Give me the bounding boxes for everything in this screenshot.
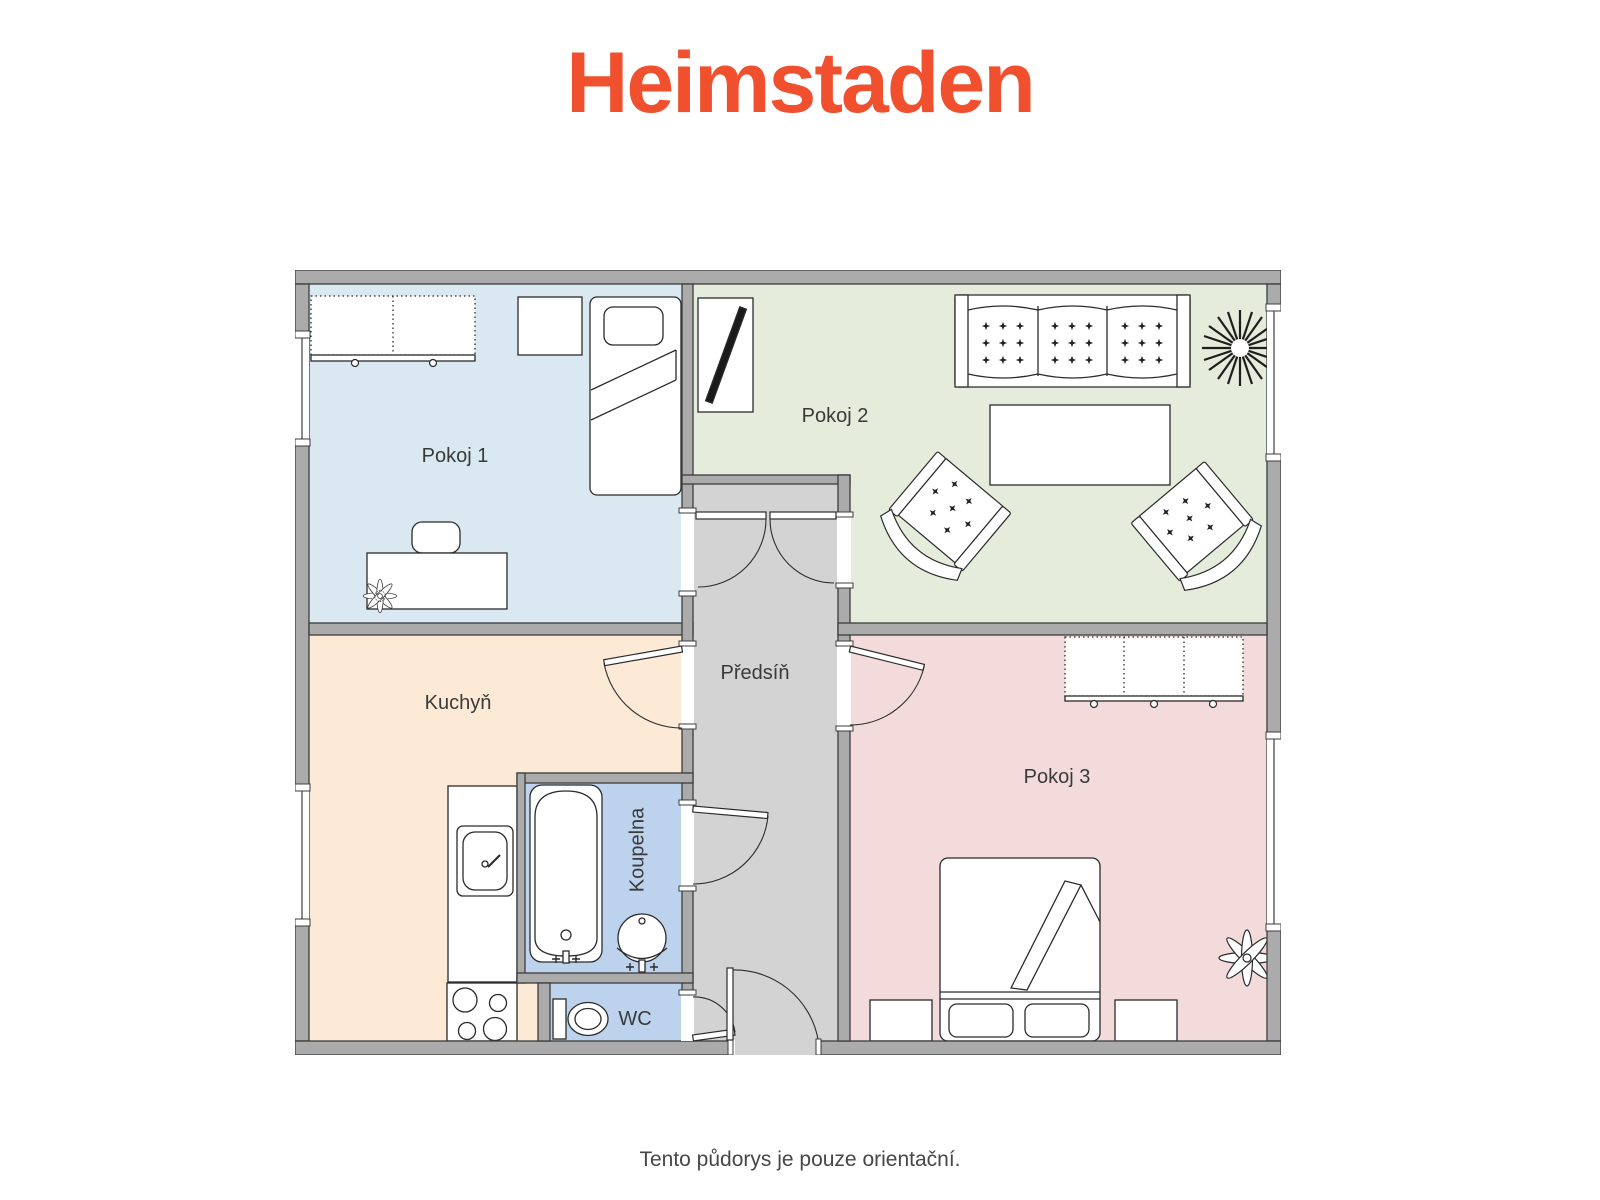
room-label-pokoj1: Pokoj 1 <box>422 445 489 467</box>
floor-plan: Pokoj 1 Pokoj 2 Pokoj 3 Kuchyň Předsíň K… <box>295 270 1281 1055</box>
doorway-koupelna <box>681 805 694 886</box>
room-label-wc: WC <box>618 1008 651 1030</box>
coffee-table <box>990 405 1170 485</box>
heimstaden-logo: Heimstaden <box>0 40 1600 126</box>
desk-chair <box>412 522 460 553</box>
wardrobe <box>311 296 475 367</box>
doorway-wc <box>681 995 694 1041</box>
double-bed <box>940 858 1100 1041</box>
doorway-kuchyn <box>681 646 694 724</box>
doorway-pokoj2 <box>837 517 851 583</box>
tv-unit <box>698 298 753 412</box>
kitchen-counter <box>448 786 517 982</box>
room-label-pokoj2: Pokoj 2 <box>802 405 869 427</box>
room-label-predsin: Předsíň <box>721 662 790 684</box>
entrance-threshold <box>735 1040 816 1055</box>
single-bed <box>590 297 681 495</box>
doorway-pokoj1 <box>681 513 694 591</box>
desk-plant-icon <box>363 579 397 613</box>
room-label-kuchyn: Kuchyň <box>425 692 492 714</box>
nightstand-right <box>1115 1000 1177 1041</box>
room-label-pokoj3: Pokoj 3 <box>1024 766 1091 788</box>
window-pokoj2 <box>1266 304 1281 461</box>
window-pokoj1 <box>295 331 310 446</box>
side-table <box>518 297 582 355</box>
doorway-pokoj3 <box>837 646 851 726</box>
toilet <box>553 999 608 1039</box>
sideboard <box>1065 637 1243 708</box>
room-label-koupelna: Koupelna <box>626 807 648 892</box>
window-kuchyn <box>295 784 310 926</box>
room-predsin-floor <box>693 484 838 1041</box>
bathtub <box>530 785 602 963</box>
sofa <box>955 295 1190 387</box>
window-pokoj3 <box>1266 732 1281 931</box>
disclaimer-caption: Tento půdorys je pouze orientační. <box>0 1148 1600 1172</box>
nightstand-left <box>870 1000 932 1041</box>
stove <box>447 983 517 1041</box>
